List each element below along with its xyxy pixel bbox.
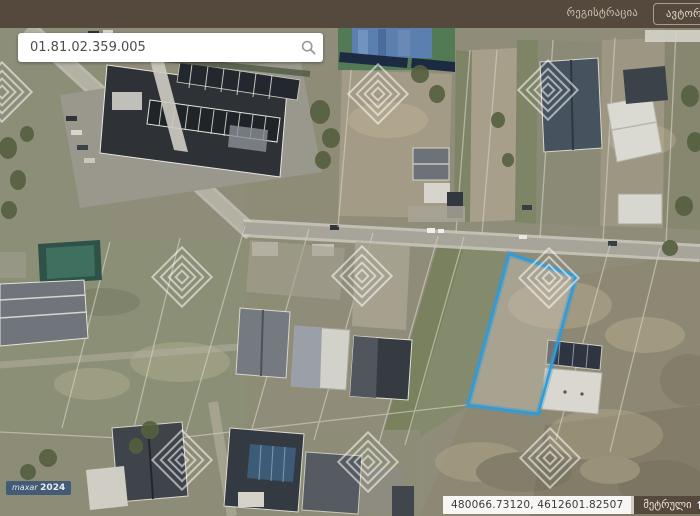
registration-link[interactable]: რეგისტრაცია (567, 7, 638, 19)
blue-court-structure (338, 28, 455, 72)
status-right-section: მეტრული ⇅ მასშტაბი (634, 496, 700, 514)
swap-vertical-icon: ⇅ (697, 499, 700, 512)
unit-toggle[interactable]: მეტრული ⇅ (643, 499, 700, 512)
unit-label: მეტრული (643, 499, 691, 511)
search-input[interactable] (18, 40, 293, 55)
imagery-credit-watermark: maxar 2024 (6, 481, 71, 495)
search-icon[interactable] (293, 40, 323, 55)
map-canvas[interactable] (0, 0, 700, 516)
authorization-button[interactable]: ავტორიზაცია (653, 3, 700, 25)
cursor-coordinates: 480066.73120, 4612601.82507 (443, 496, 631, 514)
map-application-window: რეგისტრაცია ავტორიზაცია maxar 2024 48006… (0, 0, 700, 516)
cadastral-search-box (18, 33, 323, 62)
status-bar: 480066.73120, 4612601.82507 მეტრული ⇅ მა… (443, 496, 700, 514)
top-navigation-bar: რეგისტრაცია ავტორიზაცია (0, 0, 700, 28)
